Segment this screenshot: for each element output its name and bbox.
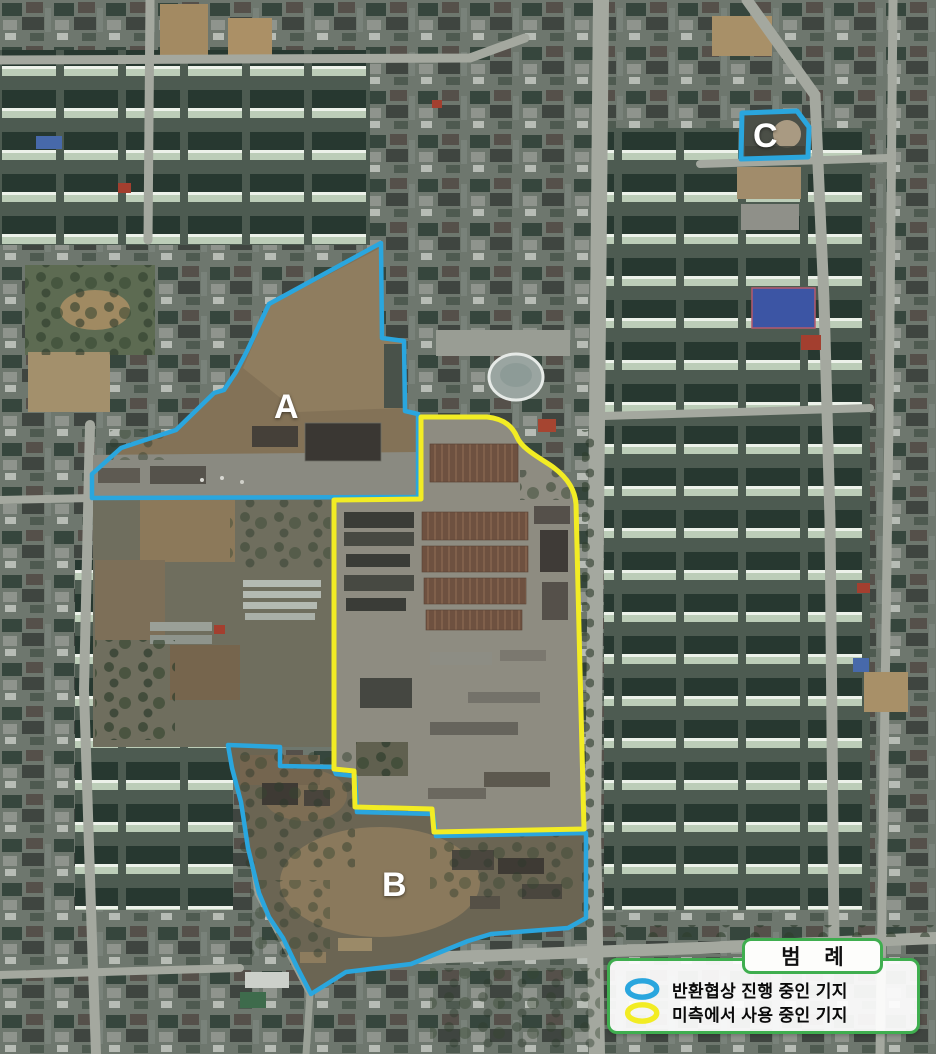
- blue-sports-court: [752, 288, 815, 328]
- legend-item-label: 반환협상 진행 중인 기지: [672, 977, 848, 1002]
- yellow-ellipse-icon: [624, 1002, 664, 1024]
- region-b-label: B: [382, 868, 407, 902]
- legend-item-return-negotiation: 반환협상 진행 중인 기지: [624, 977, 909, 1001]
- satellite-basemap: [0, 0, 936, 1054]
- legend-item-label: 미측에서 사용 중인 기지: [672, 1001, 848, 1026]
- region-a-label: A: [274, 390, 299, 424]
- legend-item-us-in-use: 미측에서 사용 중인 기지: [624, 1001, 909, 1025]
- between-base-terrain: [93, 499, 333, 747]
- blue-ellipse-icon: [624, 978, 664, 1000]
- legend-title: 범 례: [742, 938, 883, 974]
- satellite-map-screenshot: A B C 반환협상 진행 중인 기지 미측에서 사용 중인 기지 범 례: [0, 0, 936, 1054]
- region-c-label: C: [753, 119, 778, 153]
